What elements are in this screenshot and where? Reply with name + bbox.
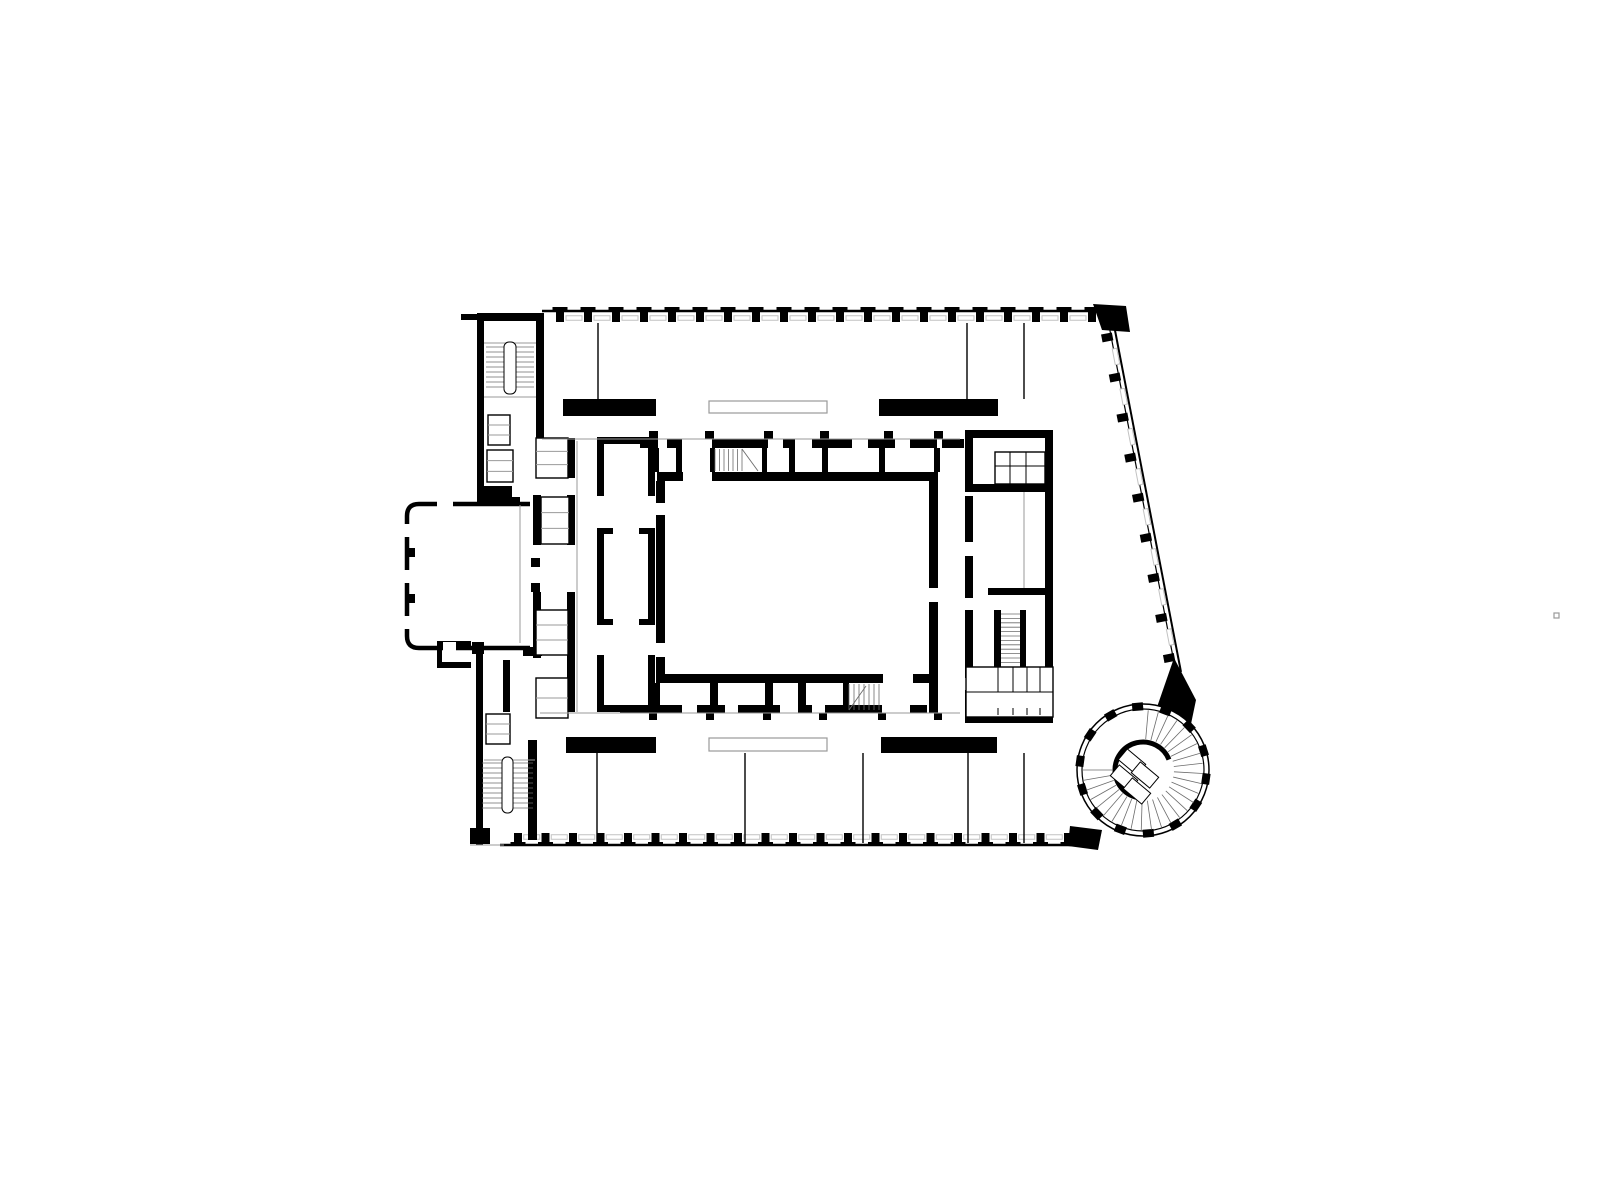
stair-southwest bbox=[482, 757, 533, 813]
corner-block-northeast bbox=[1093, 304, 1130, 332]
south-room-row bbox=[620, 683, 942, 720]
facade-south bbox=[500, 833, 1086, 846]
drawing-page bbox=[0, 0, 1601, 1201]
portico-bay bbox=[402, 500, 530, 651]
portico-junction-walls bbox=[437, 486, 542, 668]
stray-mark bbox=[1554, 613, 1559, 618]
hall-walls bbox=[656, 472, 938, 713]
stair-block-southwest bbox=[470, 652, 537, 845]
stair-northwest bbox=[486, 342, 534, 394]
lift-strip-east-wall bbox=[567, 438, 575, 712]
stair-hall-north bbox=[715, 449, 758, 471]
stair-east-wing bbox=[1001, 614, 1020, 662]
round-stair-tower bbox=[1075, 702, 1210, 837]
floor-lines bbox=[470, 343, 1024, 845]
floor-plan bbox=[0, 0, 1601, 1201]
facade-diagonal bbox=[1101, 320, 1181, 673]
facade-north bbox=[542, 307, 1110, 322]
west-gallery-rooms bbox=[597, 437, 655, 712]
north-room-row bbox=[640, 431, 964, 472]
tower-connector-southwest bbox=[1068, 826, 1102, 850]
